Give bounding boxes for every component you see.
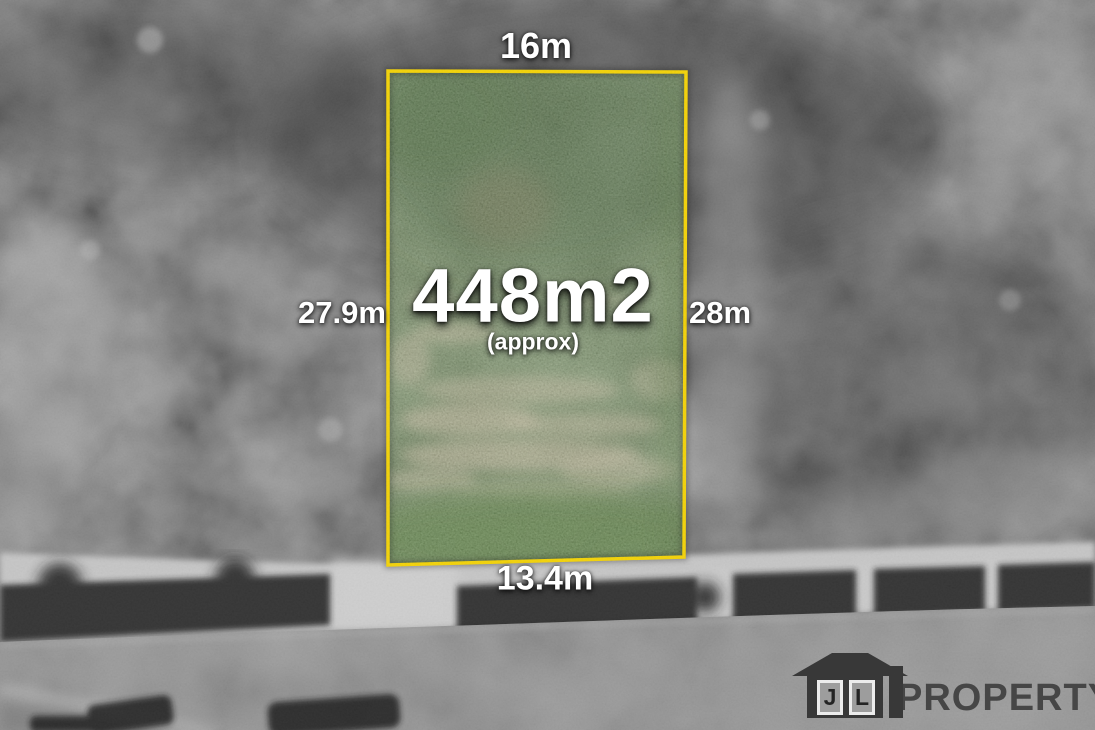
dimension-label-bottom-width: 13.4m bbox=[497, 560, 593, 599]
brand-logo: J L PROPERTY bbox=[792, 650, 1095, 730]
dimension-label-right-depth: 28m bbox=[689, 295, 751, 331]
area-approx-qualifier: (approx) bbox=[487, 329, 579, 356]
logo-letter-j-box: J bbox=[817, 680, 843, 715]
dimension-label-left-depth: 27.9m bbox=[298, 295, 386, 331]
logo-letter-l: L bbox=[855, 686, 869, 709]
photo-grain bbox=[0, 0, 1095, 730]
logo-letter-l-box: L bbox=[849, 680, 875, 715]
area-label: 448m2 bbox=[412, 253, 654, 340]
logo-letter-j: J bbox=[824, 686, 837, 709]
aerial-photo bbox=[0, 0, 1095, 730]
brand-name: PROPERTY bbox=[897, 676, 1095, 720]
dimension-label-top-width: 16m bbox=[500, 25, 572, 67]
property-listing-aerial-image: 16m 27.9m 28m 13.4m 448m2 (approx) J L P… bbox=[0, 0, 1095, 730]
